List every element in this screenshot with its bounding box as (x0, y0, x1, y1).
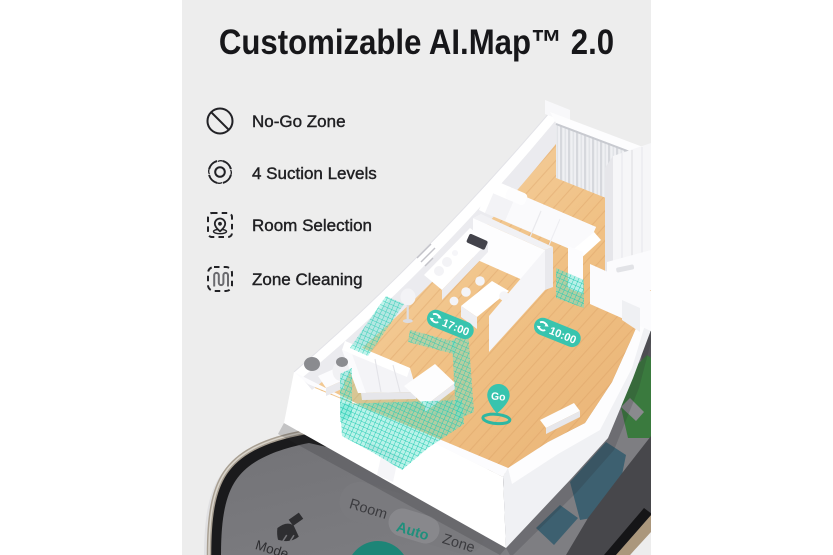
svg-text:Go: Go (490, 390, 506, 403)
